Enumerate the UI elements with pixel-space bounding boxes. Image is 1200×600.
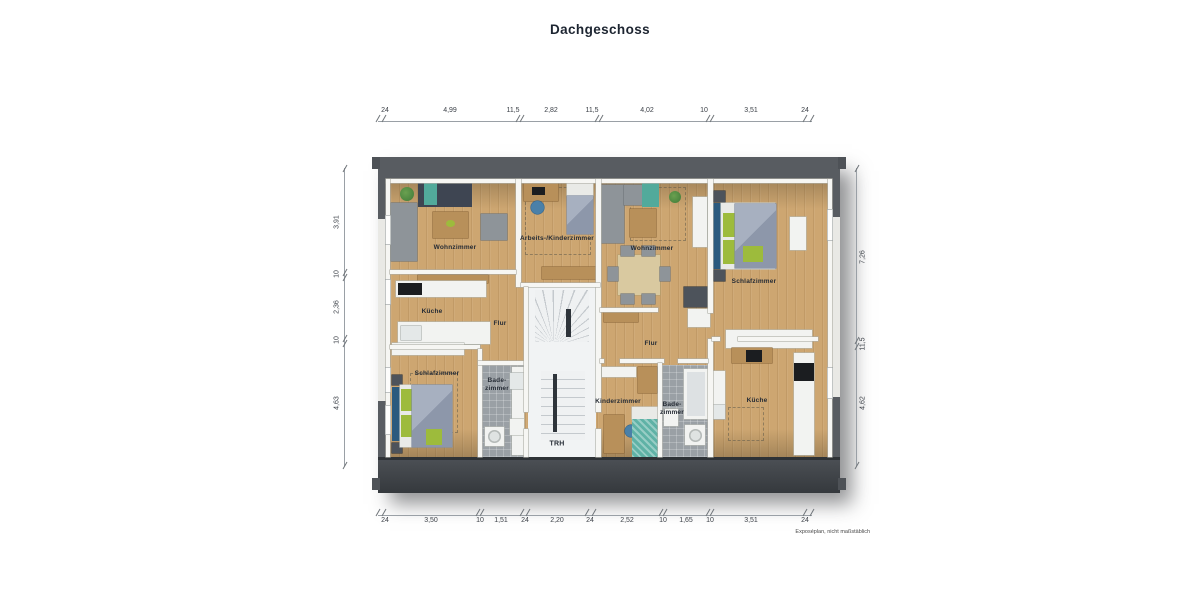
wall xyxy=(516,179,521,287)
dim-label: 4,62 xyxy=(860,396,867,410)
wall xyxy=(600,308,658,312)
desk-chair xyxy=(531,201,544,214)
floorplan-page: Dachgeschoss xyxy=(0,0,1200,600)
window xyxy=(385,405,391,435)
wardrobe xyxy=(638,367,657,393)
room-label-kueche-right: Küche xyxy=(747,397,768,405)
bed-pillow xyxy=(632,407,658,419)
dimension-chain-left: 3,91 10 2,36 10 4,63 xyxy=(330,168,348,466)
dim-label: 10 xyxy=(706,517,714,524)
dim-label: 2,52 xyxy=(620,517,634,524)
roof-tab xyxy=(372,157,380,169)
dim-line xyxy=(856,168,857,466)
room-label-bad-right: Bade- zimmer xyxy=(660,401,684,417)
wall xyxy=(596,429,601,457)
sofa-throw xyxy=(424,183,437,205)
dim-label: 4,99 xyxy=(443,107,457,114)
dim-label: 24 xyxy=(801,517,809,524)
dim-label: 3,51 xyxy=(744,517,758,524)
winder-stairs xyxy=(535,290,589,342)
oven xyxy=(794,363,814,381)
bed-blanket xyxy=(567,196,593,234)
window xyxy=(385,279,391,305)
wall xyxy=(708,179,713,313)
bed-runner xyxy=(426,429,442,445)
wall xyxy=(478,349,482,457)
dim-line xyxy=(378,515,812,516)
wall xyxy=(524,287,528,412)
sofa-throw xyxy=(642,183,659,207)
wall xyxy=(390,345,480,349)
dim-label: 7,26 xyxy=(860,250,867,264)
dining-table xyxy=(618,255,660,295)
dining-chair xyxy=(660,267,670,281)
dim-label: 24 xyxy=(586,517,594,524)
room-label-flur-right: Flur xyxy=(644,340,657,348)
coffee-table xyxy=(630,209,656,237)
hall-sideboard xyxy=(604,312,638,322)
plan-footnote: Exposéplan, nicht maßstäblich xyxy=(770,529,870,535)
dim-label: 1,65 xyxy=(679,517,693,524)
stair-railing xyxy=(566,309,571,337)
bed-runner xyxy=(743,246,763,262)
dim-label: 10 xyxy=(700,107,708,114)
wall xyxy=(524,429,528,457)
bed-headboard xyxy=(392,387,400,441)
shelf xyxy=(602,367,636,377)
dim-label: 3,91 xyxy=(334,215,341,229)
page-title: Dachgeschoss xyxy=(0,22,1200,37)
window xyxy=(385,215,391,245)
washing-machine-door xyxy=(488,430,501,443)
dining-chair xyxy=(621,294,634,304)
bathroom-sink xyxy=(510,373,524,389)
dim-label: 11,5 xyxy=(860,337,867,350)
wall xyxy=(708,339,713,457)
room-label-schlafzimmer-left: Schlafzimmer xyxy=(415,370,460,378)
dimension-chain-bottom: 24 3,50 10 1,51 24 2,20 24 2,52 10 1,65 … xyxy=(378,506,812,526)
roof-strip xyxy=(832,397,840,457)
stair-railing xyxy=(553,374,557,432)
room-label-schlafzimmer-right: Schlafzimmer xyxy=(732,278,777,286)
dim-tick xyxy=(343,165,348,172)
dim-tick xyxy=(810,115,815,122)
shelf-cabinet xyxy=(693,197,707,247)
plant xyxy=(400,187,414,201)
kids-bed xyxy=(632,419,658,457)
dim-label: 11,5 xyxy=(585,107,598,114)
wall xyxy=(386,179,828,183)
dining-chair xyxy=(608,267,618,281)
dim-label: 24 xyxy=(521,517,529,524)
dim-label: 2,20 xyxy=(550,517,564,524)
roof-tab xyxy=(838,478,846,490)
dim-label: 3,50 xyxy=(424,517,438,524)
dresser xyxy=(688,309,710,327)
dim-tick xyxy=(855,165,860,172)
wardrobe xyxy=(790,217,806,250)
dim-label: 10 xyxy=(476,517,484,524)
room-label-kueche-left: Küche xyxy=(422,308,443,316)
room-label-trh: TRH xyxy=(550,441,565,450)
room-label-wohnzimmer-right: Wohnzimmer xyxy=(631,245,674,253)
dim-label: 10 xyxy=(334,270,341,278)
dim-label: 10 xyxy=(659,517,667,524)
room-label-kinderzimmer: Kinderzimmer xyxy=(595,398,641,406)
nightstand xyxy=(392,375,402,385)
wall xyxy=(600,359,604,363)
straight-stairs xyxy=(541,371,585,440)
armchair xyxy=(481,214,507,240)
wall xyxy=(596,179,601,412)
dim-label: 4,63 xyxy=(334,396,341,410)
roof-tab xyxy=(838,157,846,169)
dimension-chain-right: 7,26 11,5 4,62 xyxy=(850,168,870,466)
room-label-bad-left: Bade- zimmer xyxy=(485,377,509,393)
dim-label: 3,51 xyxy=(744,107,758,114)
wall xyxy=(678,359,708,363)
desk xyxy=(604,415,624,453)
dim-label: 24 xyxy=(381,517,389,524)
window xyxy=(827,209,833,241)
dimension-chain-top: 24 4,99 11,5 2,82 11,5 4,02 10 3,51 24 xyxy=(378,107,812,125)
dim-label: 11,5 xyxy=(506,107,519,114)
sofa xyxy=(391,203,417,261)
wall xyxy=(390,270,516,274)
dim-label: 2,82 xyxy=(544,107,558,114)
floorplan: Wohnzimmer Arbeits-/Kinderzimmer Wohnzim… xyxy=(378,157,840,490)
kitchen-sink xyxy=(712,405,725,419)
kitchen-sink xyxy=(401,326,421,340)
room-label-flur-left: Flur xyxy=(493,320,506,328)
bed-pillow xyxy=(567,183,593,196)
cooktop xyxy=(398,283,422,295)
kitchen-appliance xyxy=(746,350,762,362)
dim-label: 2,36 xyxy=(334,300,341,314)
dim-line xyxy=(344,168,345,466)
wall xyxy=(712,337,720,341)
window xyxy=(385,367,391,393)
roof-strip xyxy=(378,179,386,219)
dim-label: 24 xyxy=(381,107,389,114)
dining-chair xyxy=(642,294,655,304)
nightstand xyxy=(714,270,725,281)
dim-label: 1,51 xyxy=(494,517,508,524)
nightstand xyxy=(714,191,725,202)
wall xyxy=(478,361,526,365)
toilet xyxy=(510,419,524,435)
hall-cabinet xyxy=(684,287,708,307)
window xyxy=(827,367,833,399)
room-label-arbeits-kinderzimmer: Arbeits-/Kinderzimmer xyxy=(520,235,594,243)
washing-machine-door xyxy=(689,429,702,442)
dim-label: 10 xyxy=(334,336,341,344)
plant xyxy=(669,191,681,203)
wall xyxy=(521,283,600,287)
roof-band-bottom xyxy=(378,457,840,493)
laptop xyxy=(532,187,545,195)
bathtub-basin xyxy=(687,372,705,416)
sideboard xyxy=(542,267,597,279)
bed-headboard xyxy=(712,203,721,269)
room-label-wohnzimmer-left: Wohnzimmer xyxy=(434,244,477,252)
roof-strip xyxy=(832,179,840,217)
dim-label: 4,02 xyxy=(640,107,654,114)
dim-tick xyxy=(810,509,815,516)
wall xyxy=(738,337,818,341)
corner-sofa xyxy=(600,185,624,243)
table-plant xyxy=(446,220,455,227)
kneewall-dashed-line xyxy=(728,407,764,441)
dim-label: 24 xyxy=(801,107,809,114)
roof-tab xyxy=(372,478,380,490)
